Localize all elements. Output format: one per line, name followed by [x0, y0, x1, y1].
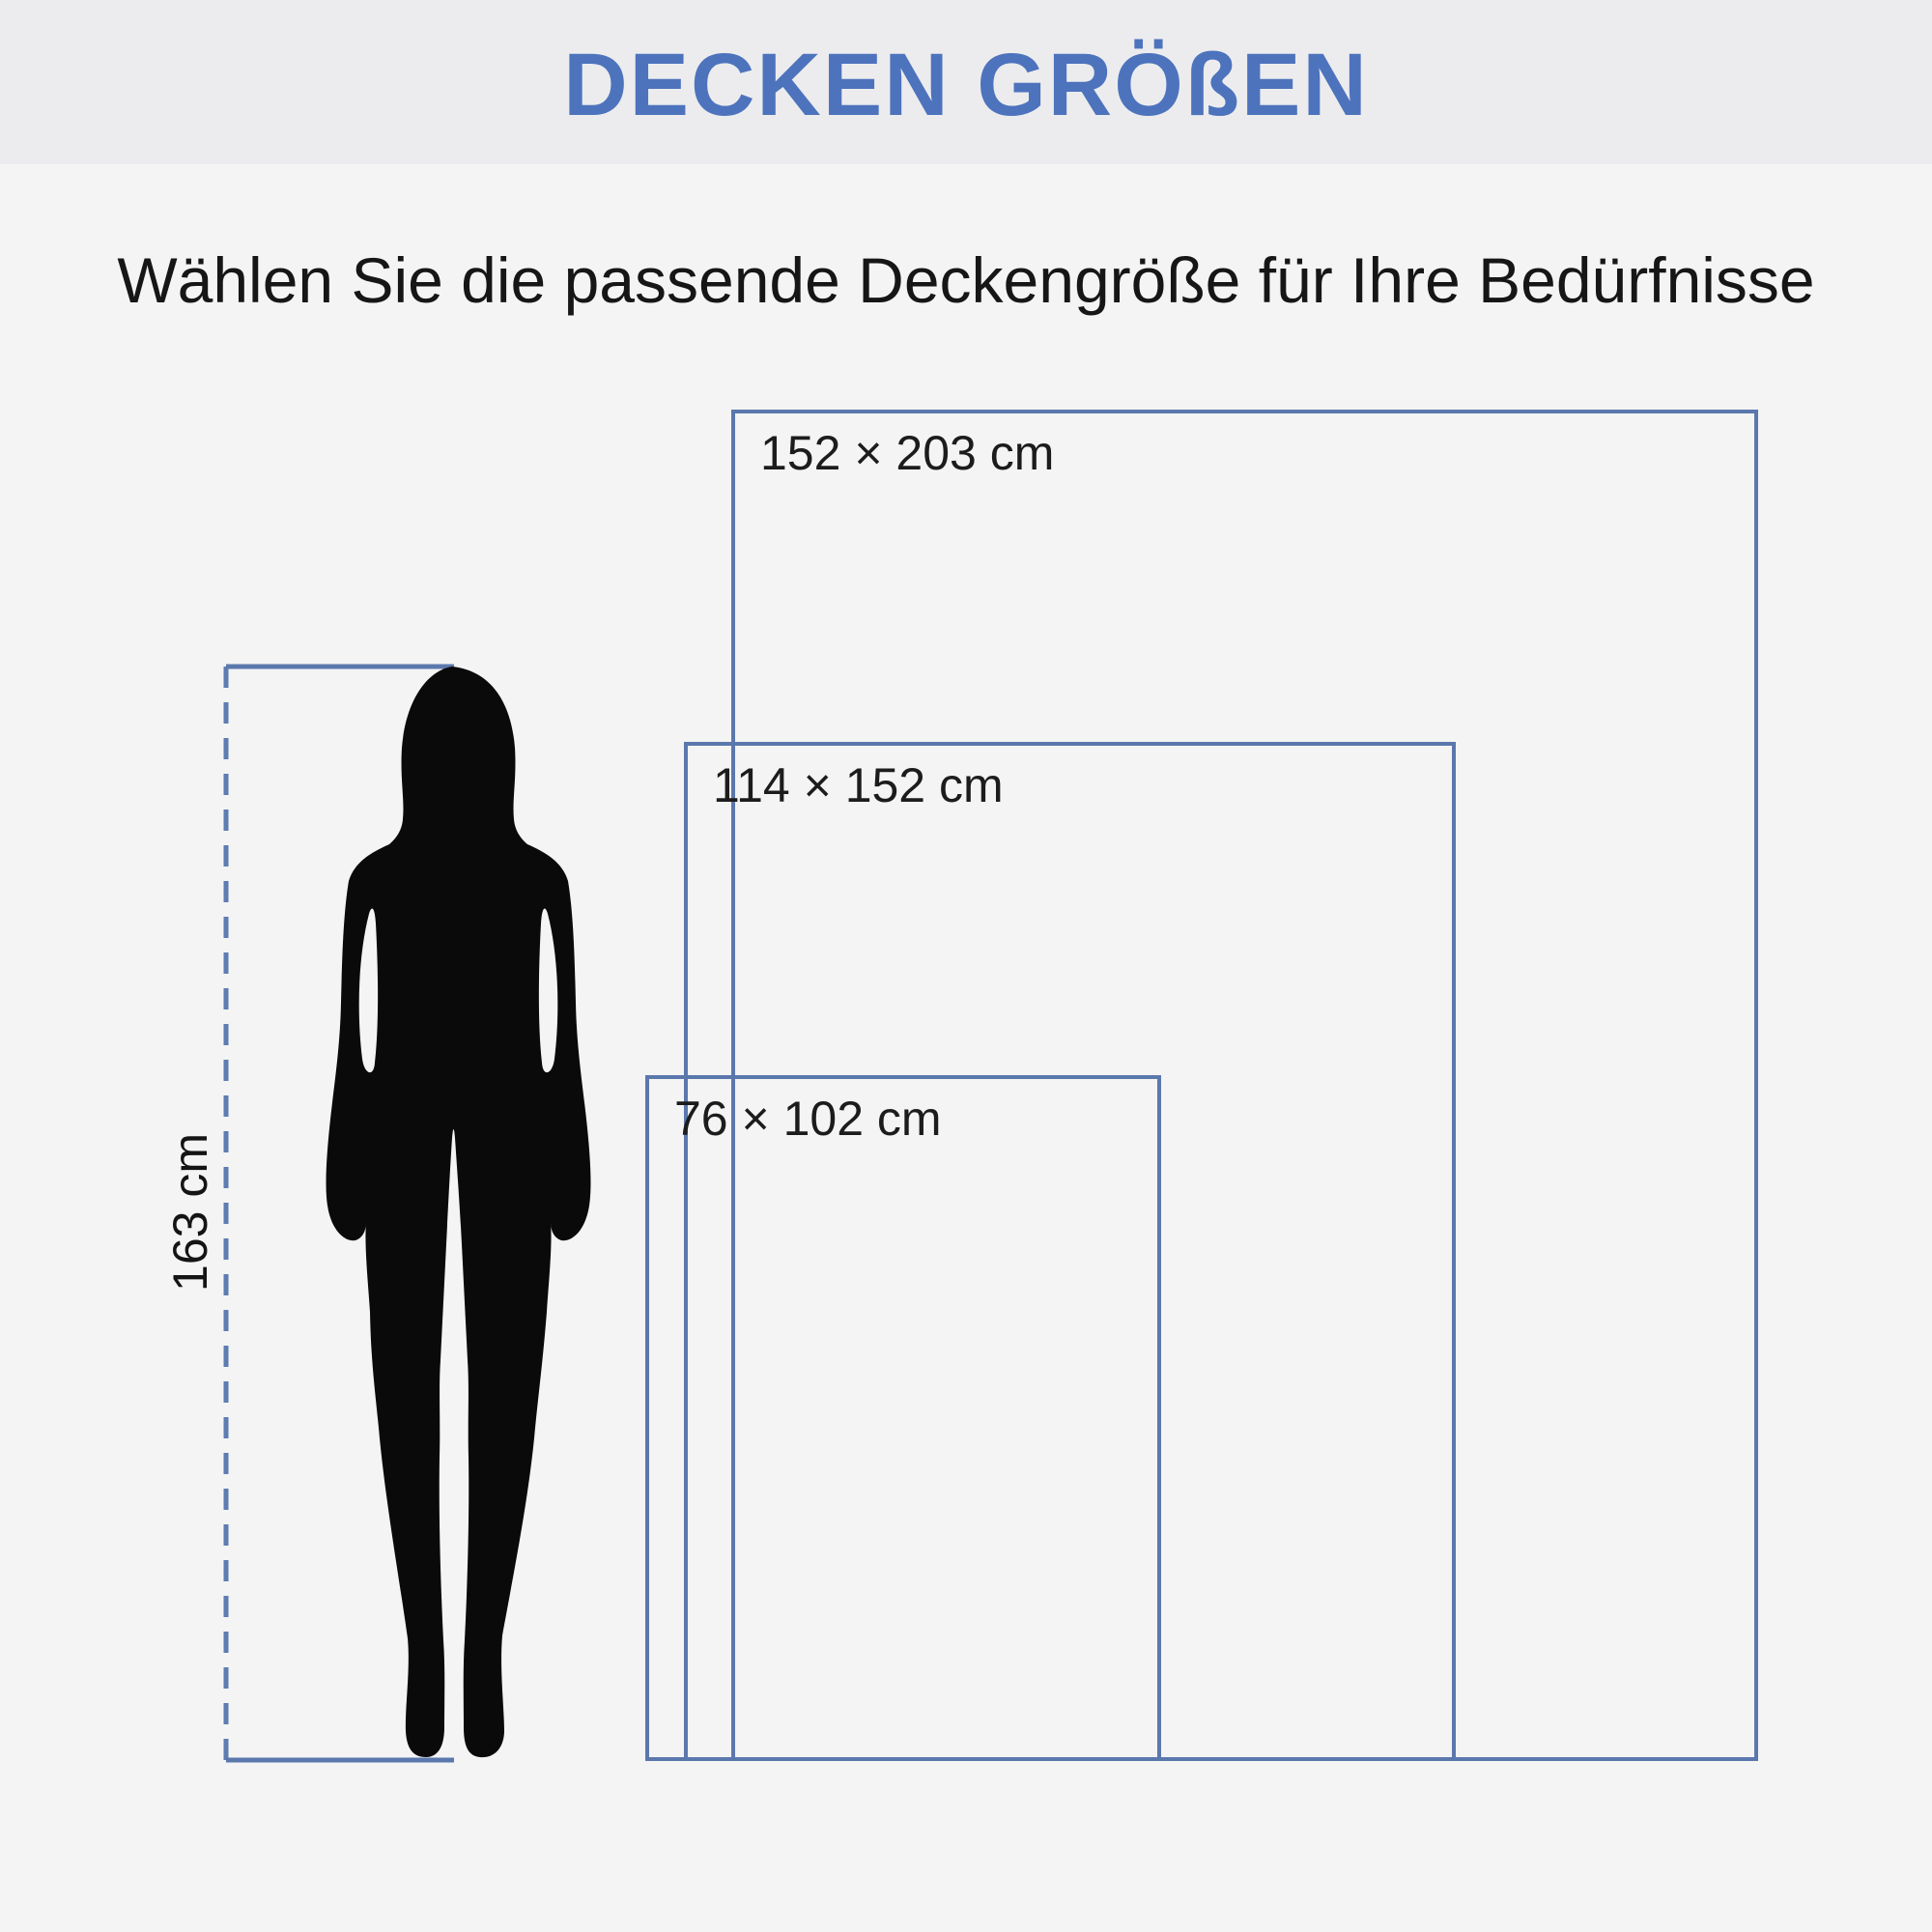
woman-silhouette [323, 665, 594, 1760]
person-height-label: 163 cm [162, 1133, 218, 1292]
blanket-size-label: 76 × 102 cm [674, 1091, 942, 1147]
page-title: DECKEN GRÖßEN [0, 0, 1932, 164]
subtitle: Wählen Sie die passende Deckengröße für … [0, 243, 1932, 317]
blanket-size-infographic: DECKEN GRÖßEN Wählen Sie die passende De… [0, 0, 1932, 1932]
title-band: DECKEN GRÖßEN [0, 0, 1932, 164]
blanket-size-label: 114 × 152 cm [713, 757, 1004, 813]
blanket-size-label: 152 × 203 cm [760, 425, 1054, 481]
blanket-rect-76x102: 76 × 102 cm [645, 1075, 1161, 1761]
